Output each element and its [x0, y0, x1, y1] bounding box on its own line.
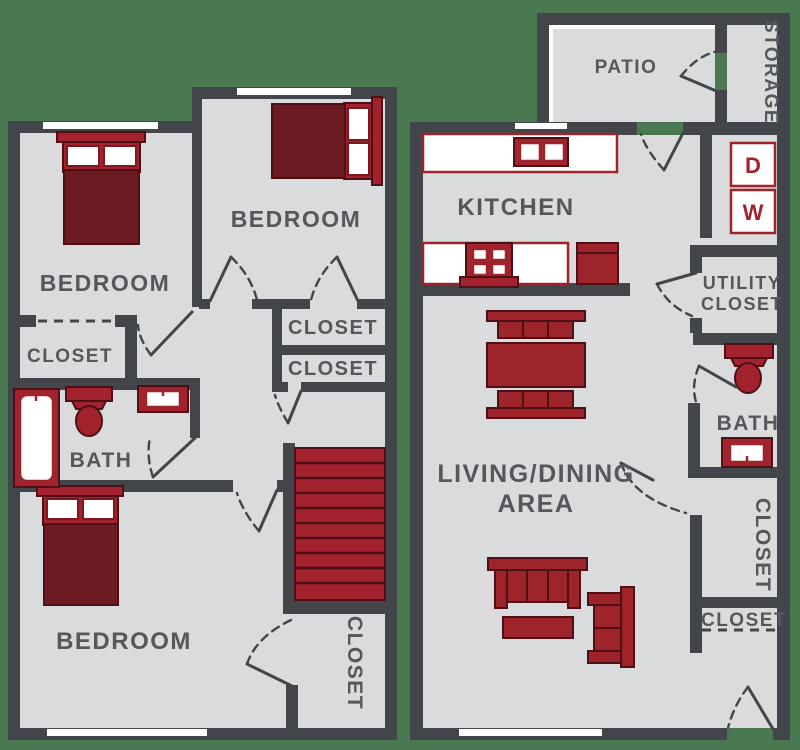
wall [537, 13, 549, 135]
wall [8, 315, 36, 327]
wall [125, 315, 137, 380]
sofa-icon [488, 558, 587, 608]
fridge-icon [577, 243, 618, 284]
wall [715, 90, 727, 122]
room-label-closet-hall-top: CLOSET [288, 317, 378, 339]
wall [252, 299, 310, 309]
room-label-patio: PATIO [595, 57, 658, 78]
washer-box: W [731, 190, 775, 233]
room-label-closet-under-stairs: CLOSET [343, 616, 366, 710]
window [237, 88, 351, 95]
double-bed-icon [37, 486, 123, 605]
room-label-closet-hall-lower: CLOSET [751, 498, 774, 592]
dryer-label: D [745, 153, 761, 178]
sink-icon [722, 438, 772, 467]
double-bed-icon [272, 97, 382, 185]
room-label-bedroom-top-right: BEDROOM [231, 206, 362, 232]
wall [688, 403, 700, 478]
wall [199, 299, 210, 309]
room-label-utility-line1: UTILITY [703, 273, 782, 293]
room-label-utility-line2: CLOSET [701, 294, 783, 314]
stairs-icon [295, 448, 385, 600]
wall [700, 135, 712, 238]
wall [283, 600, 397, 614]
wall [272, 382, 288, 392]
room-label-bath-lower: BATH [717, 412, 780, 435]
room-label-closet-side: CLOSET [27, 346, 113, 367]
upper-floor-unit: BEDROOM BEDROOM BEDROOM CLOSET CLOSET CL… [8, 87, 397, 740]
wall [283, 443, 295, 603]
window [47, 729, 207, 736]
room-label-living-line1: LIVING/DINING [437, 460, 634, 488]
double-bed-icon [57, 132, 145, 244]
room-label-kitchen: KITCHEN [457, 194, 574, 221]
room-label-living-line2: AREA [498, 490, 575, 518]
wall [690, 318, 702, 333]
wall [693, 467, 790, 478]
coffee-table-icon [503, 617, 573, 638]
window [515, 123, 567, 129]
wall [272, 309, 282, 385]
dining-table-icon [487, 311, 585, 418]
room-label-closet-entry: CLOSET [701, 610, 787, 631]
wall [537, 13, 790, 25]
dryer-box: D [731, 143, 775, 186]
room-label-closet-hall-bottom: CLOSET [288, 358, 378, 380]
sink-icon [138, 386, 188, 412]
wall [357, 299, 397, 309]
wall [715, 13, 727, 53]
armchair-icon [588, 587, 634, 667]
stove-icon [460, 243, 518, 287]
wall [702, 597, 790, 608]
wall [286, 685, 298, 728]
wall [282, 345, 385, 355]
room-label-storage: STORAGE [760, 20, 781, 124]
room-label-bedroom-top-left: BEDROOM [40, 270, 171, 296]
bathtub-icon [14, 389, 59, 487]
floor-plan: BEDROOM BEDROOM BEDROOM CLOSET CLOSET CL… [0, 0, 800, 750]
wall [385, 87, 397, 740]
wall [690, 515, 702, 653]
room-label-bedroom-bottom: BEDROOM [56, 628, 192, 655]
wall [410, 122, 423, 740]
window [43, 122, 158, 129]
wall [690, 245, 702, 273]
wall [773, 728, 790, 740]
patio-rail [549, 25, 553, 122]
wall [192, 99, 202, 307]
patio-rail [549, 25, 715, 29]
washer-label: W [743, 200, 764, 225]
wall [301, 382, 385, 392]
kitchen-sink-icon [514, 138, 568, 166]
lower-floor-unit: D W [410, 13, 790, 740]
window [459, 729, 602, 736]
room-label-bath-upper: BATH [70, 449, 133, 472]
wall [693, 245, 790, 257]
wall [190, 378, 200, 438]
